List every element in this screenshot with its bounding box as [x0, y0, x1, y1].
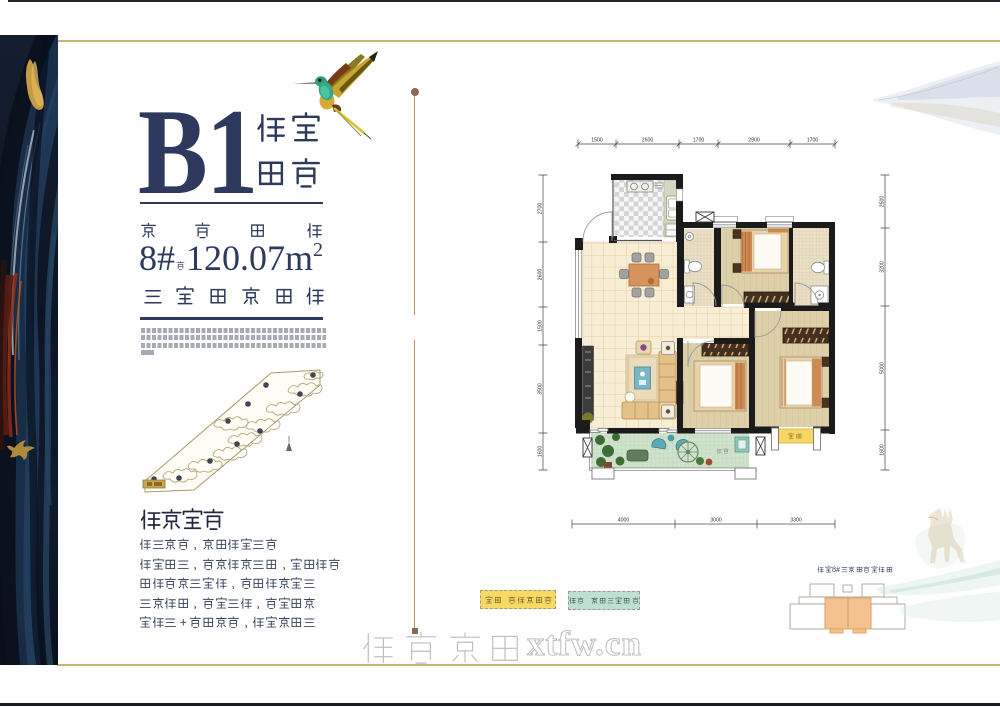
svg-text:2700: 2700 — [538, 203, 544, 215]
svg-text:2500: 2500 — [880, 196, 886, 208]
svg-text:2900: 2900 — [748, 138, 760, 144]
svg-text:1700: 1700 — [693, 138, 705, 144]
svg-text:3000: 3000 — [710, 518, 722, 524]
svg-text:1500: 1500 — [591, 138, 603, 144]
svg-text:1600: 1600 — [880, 444, 886, 456]
svg-text:2600: 2600 — [538, 269, 544, 281]
svg-text:3200: 3200 — [880, 261, 886, 273]
svg-text:4000: 4000 — [618, 518, 630, 524]
svg-text:5000: 5000 — [880, 362, 886, 374]
svg-text:1700: 1700 — [807, 138, 819, 144]
svg-text:1500: 1500 — [538, 320, 544, 332]
svg-text:3500: 3500 — [538, 383, 544, 395]
svg-text:2500: 2500 — [642, 138, 654, 144]
svg-text:1600: 1600 — [538, 446, 544, 458]
